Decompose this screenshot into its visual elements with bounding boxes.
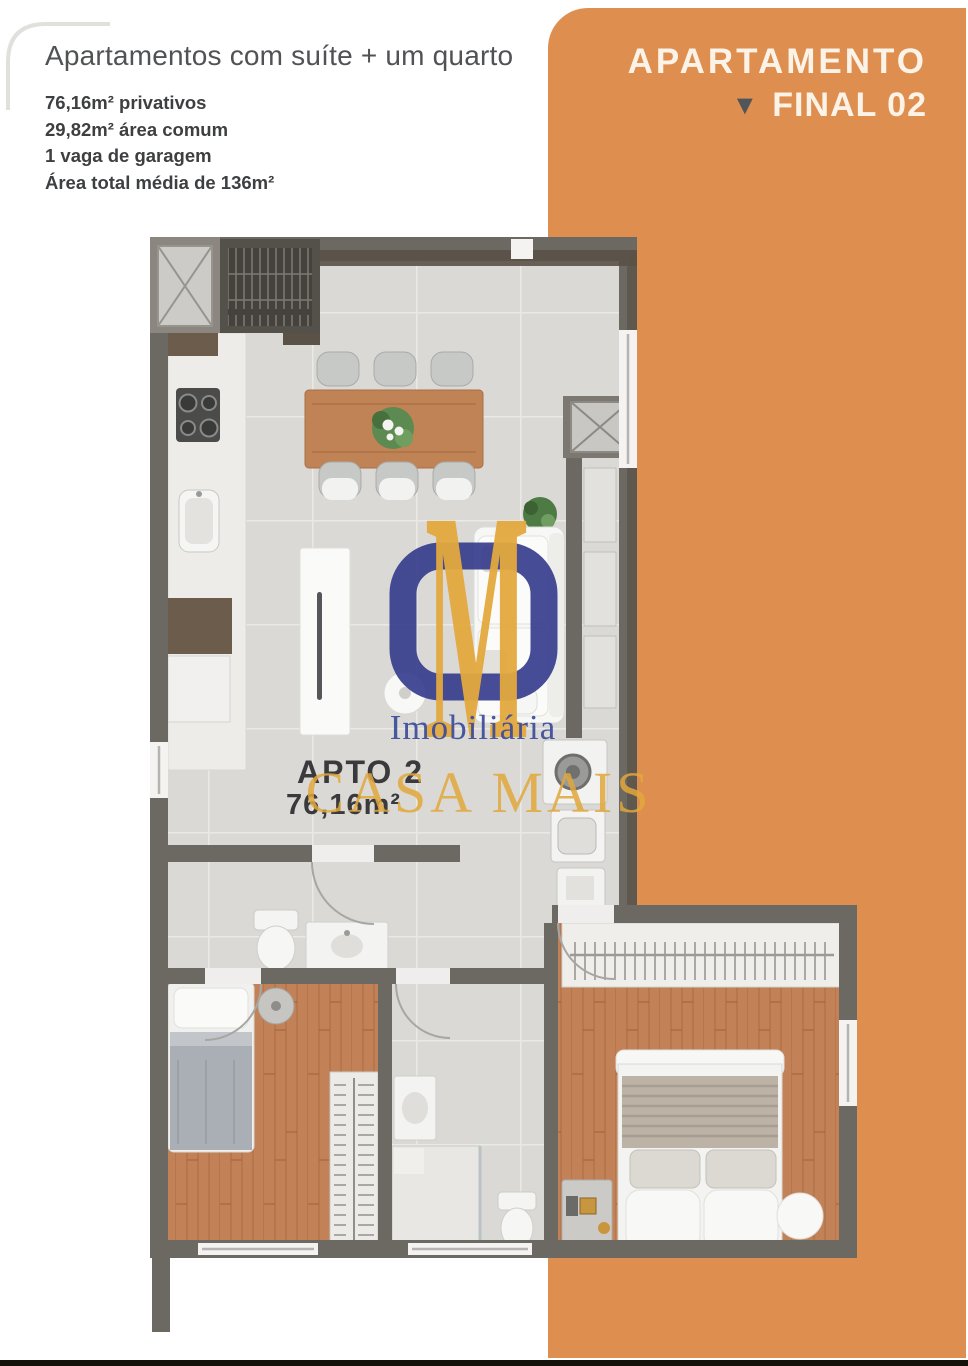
watermark: M Imobiliária CASA MAIS [0,0,968,1366]
brand-logo-m: M [425,445,529,810]
flyer-page: Apartamentos com suíte + um quarto 76,16… [0,0,968,1366]
brand-name-imobiliaria: Imobiliária [390,708,557,747]
brand-name-casa-mais: CASA MAIS [305,760,652,825]
bottom-bar [0,1360,968,1366]
